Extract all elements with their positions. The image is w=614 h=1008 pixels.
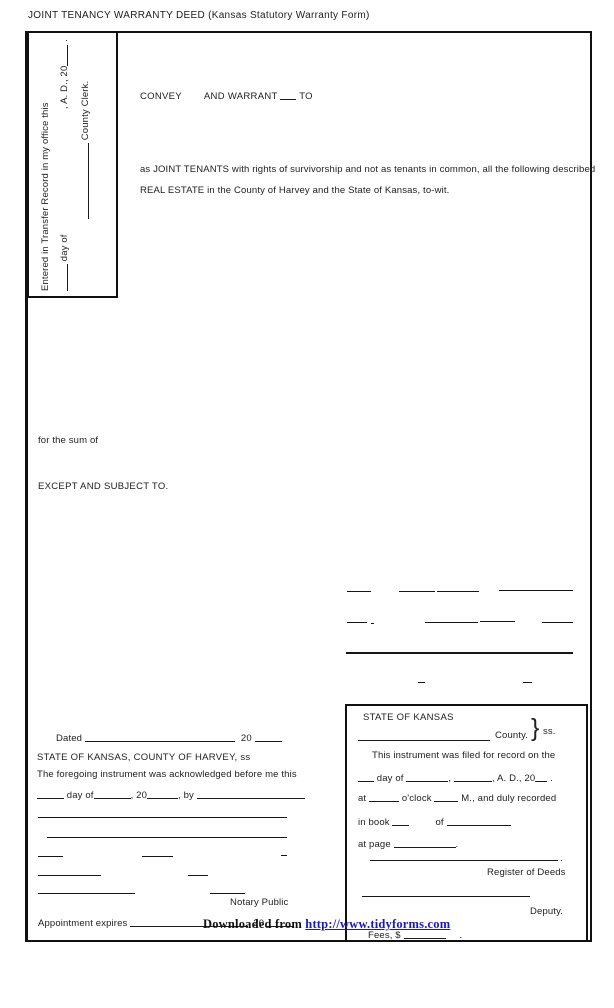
foregoing-line: The foregoing instrument was acknowledge… [37, 769, 297, 780]
county-blank-line [358, 740, 490, 741]
register-signature-line [370, 860, 558, 861]
transfer-record-date-line: day of , A. D., 20 . [58, 39, 70, 291]
signature-line [371, 623, 374, 624]
ad-year-label: , A. D., 20 [59, 66, 70, 109]
at-label: at [358, 793, 366, 804]
ss-brace: } [531, 714, 539, 743]
signature-line [542, 622, 573, 623]
for-the-sum-label: for the sum of [38, 435, 98, 446]
book-line: in book of [358, 816, 511, 828]
by-label: , by [178, 790, 194, 801]
dated-line: Dated 20 [56, 732, 282, 744]
period: . [456, 839, 459, 850]
notary-public-label: Notary Public [230, 897, 288, 908]
writing-line [281, 855, 287, 856]
writing-line [38, 893, 135, 894]
writing-line [38, 817, 287, 818]
period: . [460, 930, 463, 941]
year-label: , 20 [131, 790, 147, 801]
day-of-label: day of [59, 234, 70, 261]
watermark-url-link[interactable]: http://www.tidyforms.com [305, 917, 450, 931]
writing-line [47, 837, 287, 838]
ad-year-label: , A. D., 20 [492, 773, 535, 784]
writing-line [210, 893, 245, 894]
writing-line [142, 856, 173, 857]
county-clerk-line: County Clerk. [79, 39, 91, 291]
blank-line [535, 772, 547, 782]
blank-line [454, 772, 492, 782]
year-label: 20 [241, 733, 252, 744]
signature-line [347, 591, 371, 592]
recorded-label: M., and duly recorded [461, 793, 556, 804]
blank-line [58, 264, 68, 291]
convey-warrant-line: CONVEYAND WARRANT TO [140, 90, 313, 102]
blank-line [147, 789, 178, 799]
watermark-prefix: Downloaded from [203, 917, 302, 931]
deputy-signature-line [362, 896, 530, 897]
period: . [560, 853, 563, 864]
blank-line [85, 732, 235, 742]
writing-line [38, 875, 101, 876]
joint-tenants-line2: REAL ESTATE in the County of Harvey and … [140, 185, 449, 196]
register-of-deeds-label: Register of Deeds [487, 867, 566, 878]
blank-line [447, 816, 511, 826]
recording-date-line: day of , , A. D., 20 . [358, 772, 553, 784]
dated-label: Dated [56, 733, 82, 744]
signature-line [79, 143, 89, 219]
blank-line [358, 772, 374, 782]
period: . [550, 773, 553, 784]
blank-line [434, 792, 458, 802]
day-of-label: day of [377, 773, 404, 784]
to-label: TO [299, 91, 313, 102]
joint-tenants-line1: as JOINT TENANTS with rights of survivor… [140, 164, 595, 175]
watermark: Downloaded from http://www.tidyforms.com [203, 917, 450, 932]
in-book-label: in book [358, 817, 390, 828]
ack-date-line: day of, 20, by [37, 789, 305, 801]
writing-line [38, 856, 63, 857]
signature-line [346, 652, 573, 654]
scanned-deed-form: { "title": "JOINT TENANCY WARRANTY DEED … [0, 0, 614, 1008]
blank-line [94, 789, 131, 799]
county-label: County. [495, 730, 528, 741]
oclock-label: o'clock [402, 793, 432, 804]
blank-line [197, 789, 305, 799]
page-line: at page . [358, 838, 458, 850]
blank-line [394, 838, 456, 848]
comma: , [448, 773, 451, 784]
county-clerk-label: County Clerk. [80, 81, 91, 141]
period: . [59, 39, 70, 42]
transfer-record-entered-line: Entered in Transfer Record in my office … [40, 39, 51, 291]
blank-line [392, 816, 409, 826]
at-page-label: at page [358, 839, 391, 850]
blank-line [369, 792, 399, 802]
except-subject-label: EXCEPT AND SUBJECT TO. [38, 481, 169, 492]
recording-state-label: STATE OF KANSAS [363, 712, 454, 723]
blank-line [280, 90, 296, 100]
deputy-label: Deputy. [530, 906, 563, 917]
writing-line [188, 875, 208, 876]
transfer-record-rotated-text: Entered in Transfer Record in my office … [31, 39, 111, 291]
of-label: of [435, 817, 443, 828]
signature-line [523, 682, 532, 683]
blank-line [58, 45, 68, 66]
signature-line [437, 591, 479, 592]
state-county-ss: STATE OF KANSAS, COUNTY OF HARVEY, ss [37, 752, 250, 763]
signature-line [480, 621, 515, 622]
blank-line [37, 789, 64, 799]
signature-line [399, 591, 435, 592]
convey-label: CONVEY [140, 91, 182, 102]
blank-line [406, 772, 448, 782]
blank-line [255, 732, 282, 742]
signature-line [499, 590, 573, 591]
and-warrant-label: AND WARRANT [204, 91, 278, 102]
ss-label: ss. [543, 726, 556, 737]
form-title: JOINT TENANCY WARRANTY DEED (Kansas Stat… [28, 10, 370, 21]
filed-for-record-line: This instrument was filed for record on … [372, 750, 555, 761]
appointment-expires-label: Appointment expires [38, 918, 127, 929]
signature-line [425, 622, 478, 623]
signature-line [418, 682, 425, 683]
day-of-label: day of [67, 790, 94, 801]
signature-line [347, 622, 367, 623]
oclock-line: at o'clock M., and duly recorded [358, 792, 556, 804]
